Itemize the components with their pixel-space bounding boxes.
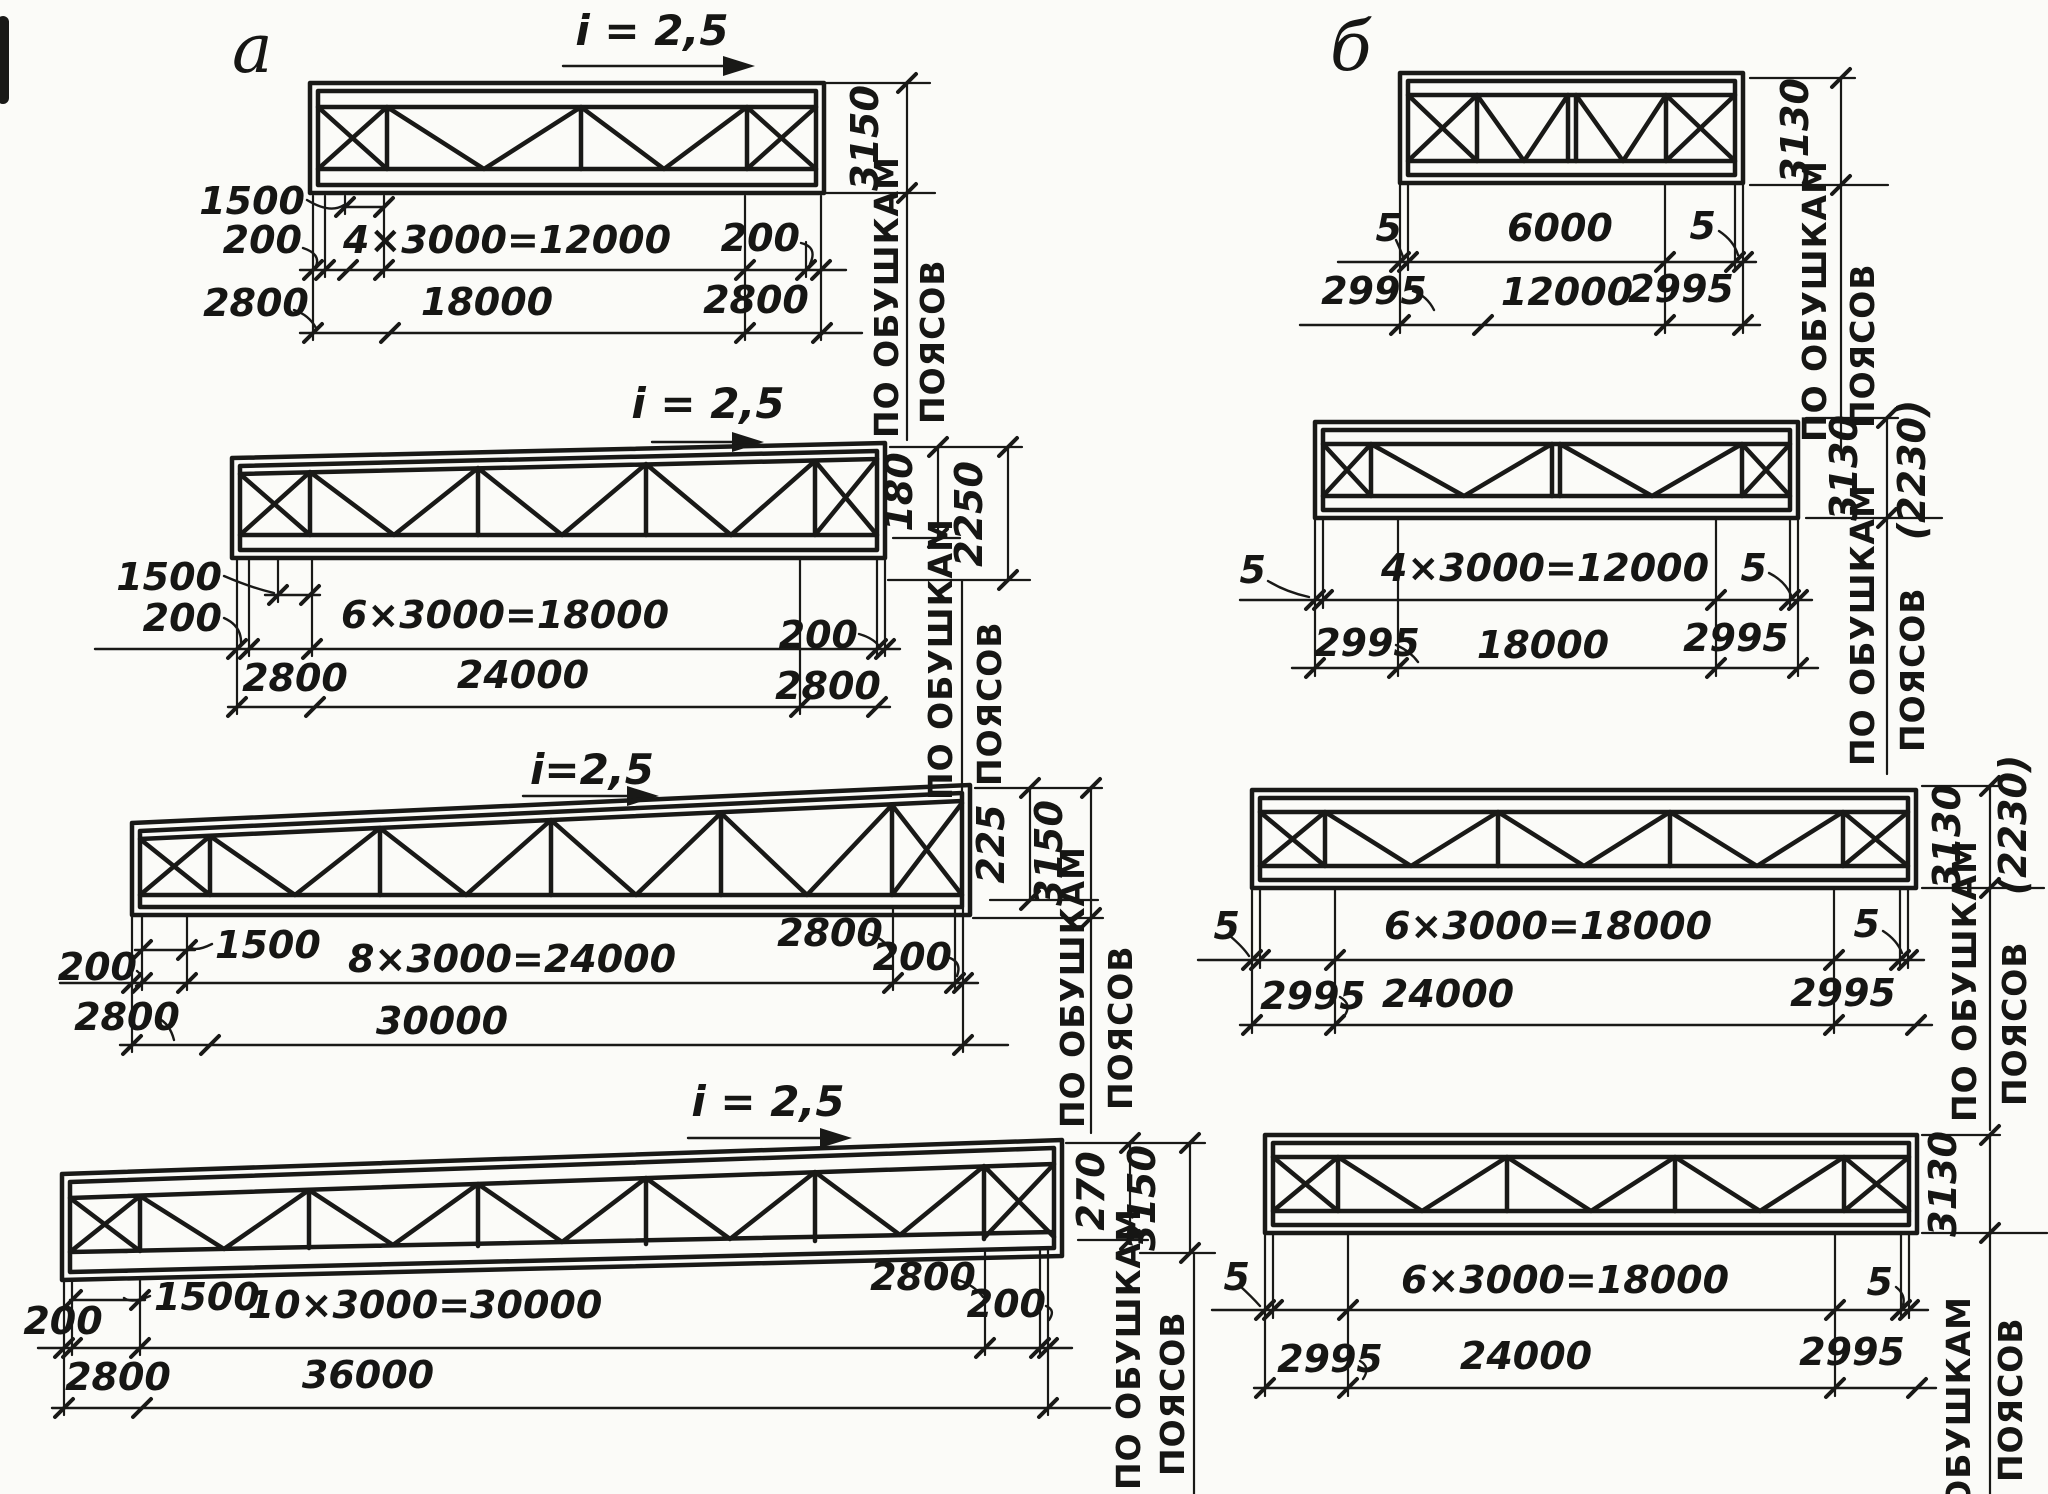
truss-web	[1323, 444, 1790, 496]
dim-2800-right: 2800	[703, 278, 809, 322]
dim-200-left: 200	[23, 1299, 102, 1343]
truss-web	[1408, 95, 1735, 161]
truss-web	[1273, 1157, 1909, 1211]
note-line-1: ПО ОБУШКАМ	[1945, 840, 1984, 1122]
dim-panels: 6×3000=18000	[1401, 1258, 1729, 1302]
dim-2800-right: 2800	[777, 911, 883, 955]
slope-arrow-head	[723, 56, 755, 76]
slope-arrow-head	[732, 432, 764, 452]
section-a-label: а	[232, 10, 273, 89]
dim-panels: 6000	[1507, 206, 1613, 250]
dim-5-right: 5	[1867, 1260, 1893, 1304]
dim-200-right: 200	[873, 935, 952, 979]
note-line-2: ПОЯСОВ	[1893, 587, 1932, 752]
dim-2800-right: 2800	[775, 664, 881, 708]
truss-frame	[232, 443, 885, 558]
dim-2800-left: 2800	[242, 656, 348, 700]
dim-2800-left: 2800	[203, 281, 309, 325]
dim-5-left: 5	[1224, 1255, 1250, 1299]
dim-2800-left: 2800	[65, 1355, 171, 1399]
note-line-2: ПОЯСОВ	[1995, 941, 2034, 1106]
dim-5-right: 5	[1741, 546, 1767, 590]
dim-1500: 1500	[154, 1275, 260, 1319]
note-line-2: ПОЯСОВ	[970, 621, 1009, 786]
dim-2995-left: 2995	[1260, 974, 1366, 1018]
dim-height-alt: (2230)	[1991, 755, 2035, 896]
note-line-2: ПОЯСОВ	[1843, 263, 1882, 428]
dim-1500: 1500	[116, 555, 222, 599]
dim-200-left: 200	[223, 218, 302, 262]
dim-rise: 180	[877, 452, 921, 531]
dim-2800-left: 2800	[74, 995, 180, 1039]
dim-span: 12000	[1501, 270, 1633, 314]
dim-rise: 225	[969, 804, 1013, 883]
dim-2995-left: 2995	[1277, 1337, 1383, 1381]
dim-2995-right: 2995	[1790, 971, 1896, 1015]
dim-span: 18000	[421, 280, 553, 324]
dim-1500: 1500	[199, 179, 305, 223]
note-line-2: ПОЯСОВ	[913, 259, 952, 424]
section-b-label: б	[1330, 8, 1372, 87]
dim-2995-right: 2995	[1628, 267, 1734, 311]
note-line-1: ПО ОБУШКАМ	[1843, 484, 1882, 766]
dim-rise: 270	[1069, 1151, 1113, 1230]
dim-200-left: 200	[143, 596, 222, 640]
dim-span: 24000	[1382, 972, 1514, 1016]
dim-200-right: 200	[967, 1282, 1046, 1326]
truss-b3: 5 6×3000=18000 5 2995 24000 2995 3130 (2…	[1198, 755, 2044, 1130]
note-line-2: ПОЯСОВ	[1991, 1317, 2030, 1482]
dim-height-alt: (2230)	[1890, 400, 1934, 541]
dim-span: 30000	[376, 999, 508, 1043]
dim-span: 24000	[457, 653, 589, 697]
truss-b2: 5 4×3000=12000 5 2995 18000 2995 3130 (2…	[1240, 400, 1942, 774]
dim-panels: 8×3000=24000	[348, 937, 676, 981]
dim-2800-right: 2800	[870, 1255, 976, 1299]
note-line-2: ПОЯСОВ	[1153, 1311, 1192, 1476]
note-line-2: ПОЯСОВ	[1101, 945, 1140, 1110]
truss-web	[318, 107, 816, 169]
note-line-1: ПО ОБУШКАМ	[1053, 846, 1092, 1128]
dim-5-left: 5	[1214, 904, 1240, 948]
truss-a4: i = 2,5 200 1500 10×3000=30000 2800 200 …	[23, 1077, 1215, 1494]
dim-panels: 10×3000=30000	[248, 1283, 603, 1327]
truss-a3: i=2,5 200 1500 8×3000=24000 2800 200 280…	[58, 745, 1140, 1133]
dim-panels: 6×3000=18000	[1384, 904, 1712, 948]
note-line-1: ПО ОБУШКАМ	[867, 156, 906, 438]
truss-b1: 5 6000 5 2995 12000 2995 3130 ПО ОБУШКАМ…	[1300, 69, 1888, 450]
dim-200-right: 200	[779, 613, 858, 657]
dim-panels: 6×3000=18000	[341, 593, 669, 637]
note-line-1: ПО ОБУШКАМ	[1795, 160, 1834, 442]
dim-200-right: 200	[721, 216, 800, 260]
dim-span: 18000	[1477, 623, 1609, 667]
truss-frame	[1315, 422, 1798, 518]
slope-label: i=2,5	[530, 745, 654, 794]
truss-schemes-figure: а б i = 2,5 1500 200 4×3000=12000 200 28…	[0, 0, 2048, 1494]
dim-2995-right: 2995	[1683, 616, 1789, 660]
dim-2995-right: 2995	[1799, 1330, 1905, 1374]
truss-a1: i = 2,5 1500 200 4×3000=12000 200 2800 1…	[199, 6, 952, 440]
slope-arrow-head	[820, 1128, 852, 1148]
dim-2995-left: 2995	[1321, 269, 1427, 313]
slope-label: i = 2,5	[575, 6, 728, 55]
truss-web	[1260, 812, 1908, 866]
dim-5-left: 5	[1376, 206, 1402, 250]
truss-frame	[1400, 73, 1743, 183]
drawing-sheet: а б i = 2,5 1500 200 4×3000=12000 200 28…	[0, 0, 2048, 1494]
dim-panels: 4×3000=12000	[1380, 546, 1709, 590]
truss-a2: i = 2,5 1500 200 6×3000=18000 200 2800 2…	[95, 379, 1030, 808]
dim-2995-left: 2995	[1314, 621, 1420, 665]
dim-5-right: 5	[1854, 902, 1880, 946]
dim-height: 3130	[1921, 1131, 1965, 1237]
note-line-1: ПО ОБУШКАМ	[921, 518, 960, 800]
dim-span: 36000	[302, 1353, 434, 1397]
slope-label: i = 2,5	[631, 379, 784, 428]
truss-frame	[1265, 1135, 1917, 1233]
truss-frame	[1252, 790, 1916, 888]
dim-5-left: 5	[1240, 548, 1266, 592]
note-line-1: ПО ОБУШКАМ	[1109, 1208, 1148, 1490]
truss-b4: 5 6×3000=18000 5 2995 24000 2995 3130 ПО…	[1212, 1126, 2047, 1494]
dim-panels: 4×3000=12000	[342, 218, 671, 262]
dim-5-right: 5	[1690, 204, 1716, 248]
dim-200-left: 200	[58, 945, 137, 989]
slope-label: i = 2,5	[691, 1077, 844, 1126]
dim-1500: 1500	[215, 923, 321, 967]
dim-span: 24000	[1460, 1334, 1592, 1378]
note-line-1: ПО ОБУШКАМ	[1939, 1296, 1978, 1494]
